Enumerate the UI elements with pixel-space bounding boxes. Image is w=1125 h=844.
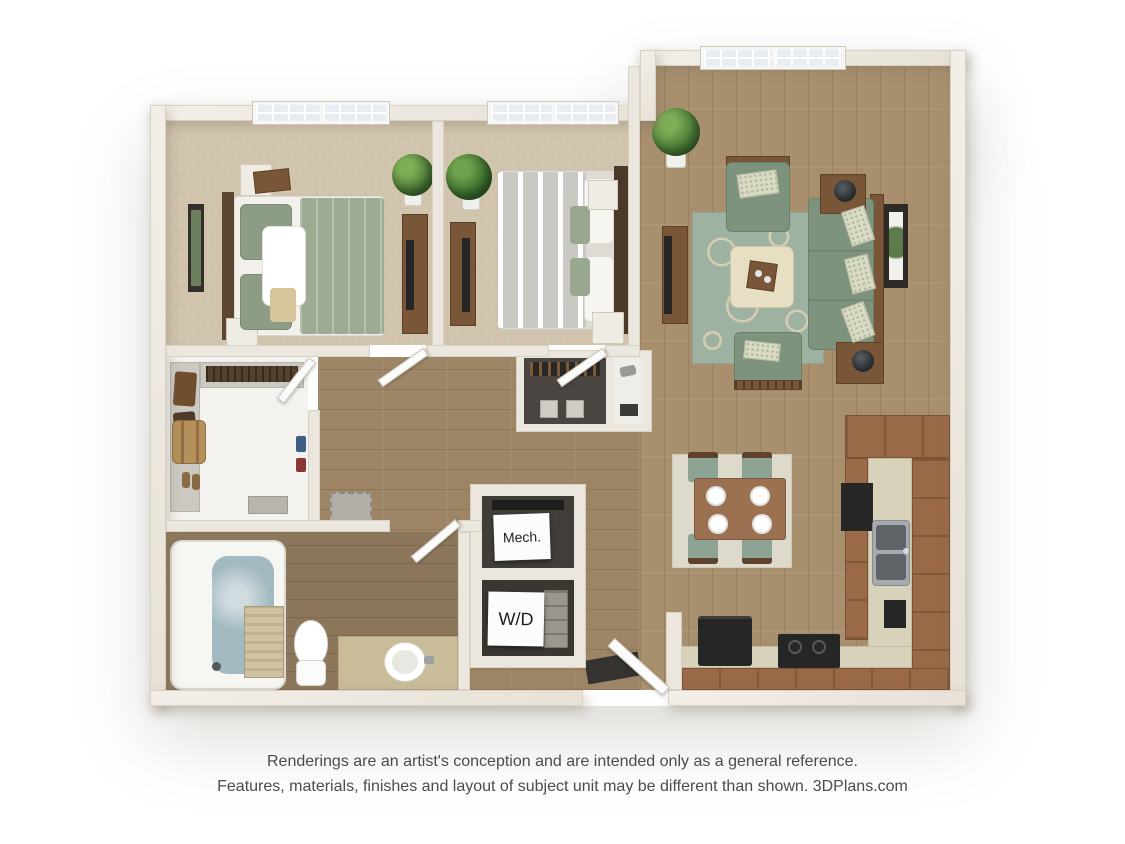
wall-bath-top bbox=[166, 520, 390, 532]
plate-2 bbox=[750, 486, 770, 506]
wall-step-living bbox=[640, 50, 656, 121]
wall-bottom-right bbox=[668, 690, 966, 706]
wall-right bbox=[950, 50, 966, 706]
bedroom1-window-icon bbox=[252, 101, 390, 125]
wall-bath-top-b bbox=[458, 520, 482, 532]
bed1-plant-icon bbox=[392, 154, 434, 196]
tray-cup-1 bbox=[755, 270, 762, 277]
shower-curtain bbox=[244, 606, 284, 678]
stove-icon bbox=[778, 634, 840, 668]
closet-item-red bbox=[296, 458, 306, 472]
bedroom1-window-sash-1 bbox=[256, 105, 320, 121]
closet-clothes-1 bbox=[173, 371, 197, 406]
linen-closet-item bbox=[620, 404, 638, 416]
kitchen-corner-cabinet bbox=[845, 415, 950, 458]
plate-3 bbox=[708, 514, 728, 534]
stove-burner-2 bbox=[812, 640, 826, 654]
plate-1 bbox=[706, 486, 726, 506]
chaise-rail bbox=[734, 380, 802, 390]
closet-hanging-clothes-top bbox=[206, 366, 298, 382]
sink-basin-1 bbox=[876, 525, 906, 550]
table-lamp-top-icon bbox=[834, 180, 856, 202]
living-plant-icon bbox=[652, 108, 700, 156]
closet-bench bbox=[248, 496, 288, 514]
bed1-wall-art bbox=[191, 210, 201, 286]
chaise-pillow bbox=[743, 340, 781, 362]
sink-faucet-icon bbox=[903, 548, 909, 554]
wall-closet-right bbox=[308, 410, 320, 532]
bed2-accent-pillow-1 bbox=[570, 206, 590, 244]
wall-hall-c bbox=[605, 345, 640, 357]
bed2-tv-icon bbox=[462, 238, 470, 312]
bedroom2-window-sash-2 bbox=[555, 105, 616, 121]
small-appliance-icon bbox=[884, 600, 906, 628]
closet-shoe-2 bbox=[192, 474, 200, 490]
bed2-nightstand-bottom bbox=[592, 312, 624, 344]
washer-dryer-icon bbox=[544, 590, 568, 648]
bed2-closet-drawer-2 bbox=[566, 400, 584, 418]
bed1-bench bbox=[253, 168, 291, 194]
bed1-tv-icon bbox=[406, 240, 414, 310]
living-wall-art bbox=[889, 212, 903, 280]
closet-luggage bbox=[172, 420, 206, 464]
table-lamp-bottom-icon bbox=[852, 350, 874, 372]
mech-closet-label: Mech. bbox=[493, 513, 551, 561]
mech-equipment-icon bbox=[492, 500, 564, 510]
vanity-faucet-icon bbox=[424, 656, 434, 664]
kitchen-right-upper-cabinets bbox=[912, 458, 950, 690]
floor-plan-page: Mech. W/D R bbox=[0, 0, 1125, 844]
tv-icon bbox=[664, 236, 672, 314]
wall-hall-a bbox=[166, 345, 370, 357]
stove-burner-1 bbox=[788, 640, 802, 654]
bed2-plant-icon bbox=[446, 154, 492, 200]
wall-oven-icon bbox=[841, 483, 873, 531]
vanity-sink-basin bbox=[392, 650, 418, 674]
refrigerator-icon bbox=[698, 616, 752, 666]
wall-left bbox=[150, 105, 166, 706]
toilet-tank bbox=[296, 660, 326, 686]
sink-basin-2 bbox=[876, 554, 906, 580]
living-window-sash-1 bbox=[704, 50, 772, 66]
ottoman-tray bbox=[746, 260, 778, 292]
plate-4 bbox=[752, 514, 772, 534]
wall-hall-b bbox=[426, 345, 549, 357]
wall-bed1-bed2 bbox=[432, 121, 444, 350]
wall-bed2-living bbox=[628, 66, 640, 352]
dining-table bbox=[694, 478, 786, 540]
bed1-throw bbox=[270, 288, 296, 322]
disclaimer-line-1: Renderings are an artist's conception an… bbox=[0, 753, 1125, 771]
kitchen-bottom-cabinets bbox=[680, 668, 950, 690]
wd-closet-label: W/D bbox=[488, 592, 545, 647]
tub-faucet-icon bbox=[212, 662, 221, 671]
bedroom2-window-icon bbox=[487, 101, 619, 125]
bed2-striped-duvet bbox=[498, 172, 586, 328]
wall-bath-right bbox=[458, 532, 470, 690]
wall-bottom-left bbox=[150, 690, 583, 706]
closet-shoe-1 bbox=[182, 472, 190, 488]
tray-cup-2 bbox=[764, 276, 771, 283]
closet-item-blue bbox=[296, 436, 306, 452]
bed2-accent-pillow-2 bbox=[570, 258, 590, 296]
bedroom1-window-sash-2 bbox=[323, 105, 387, 121]
bed1-duvet bbox=[300, 198, 384, 334]
bed2-nightstand-top bbox=[588, 180, 618, 210]
bed2-closet-drawer-1 bbox=[540, 400, 558, 418]
living-window-sash-2 bbox=[775, 50, 843, 66]
living-window-icon bbox=[700, 46, 846, 70]
disclaimer-line-2: Features, materials, finishes and layout… bbox=[0, 778, 1125, 796]
bedroom2-window-sash-1 bbox=[491, 105, 552, 121]
wall-entry-stub bbox=[666, 612, 682, 690]
